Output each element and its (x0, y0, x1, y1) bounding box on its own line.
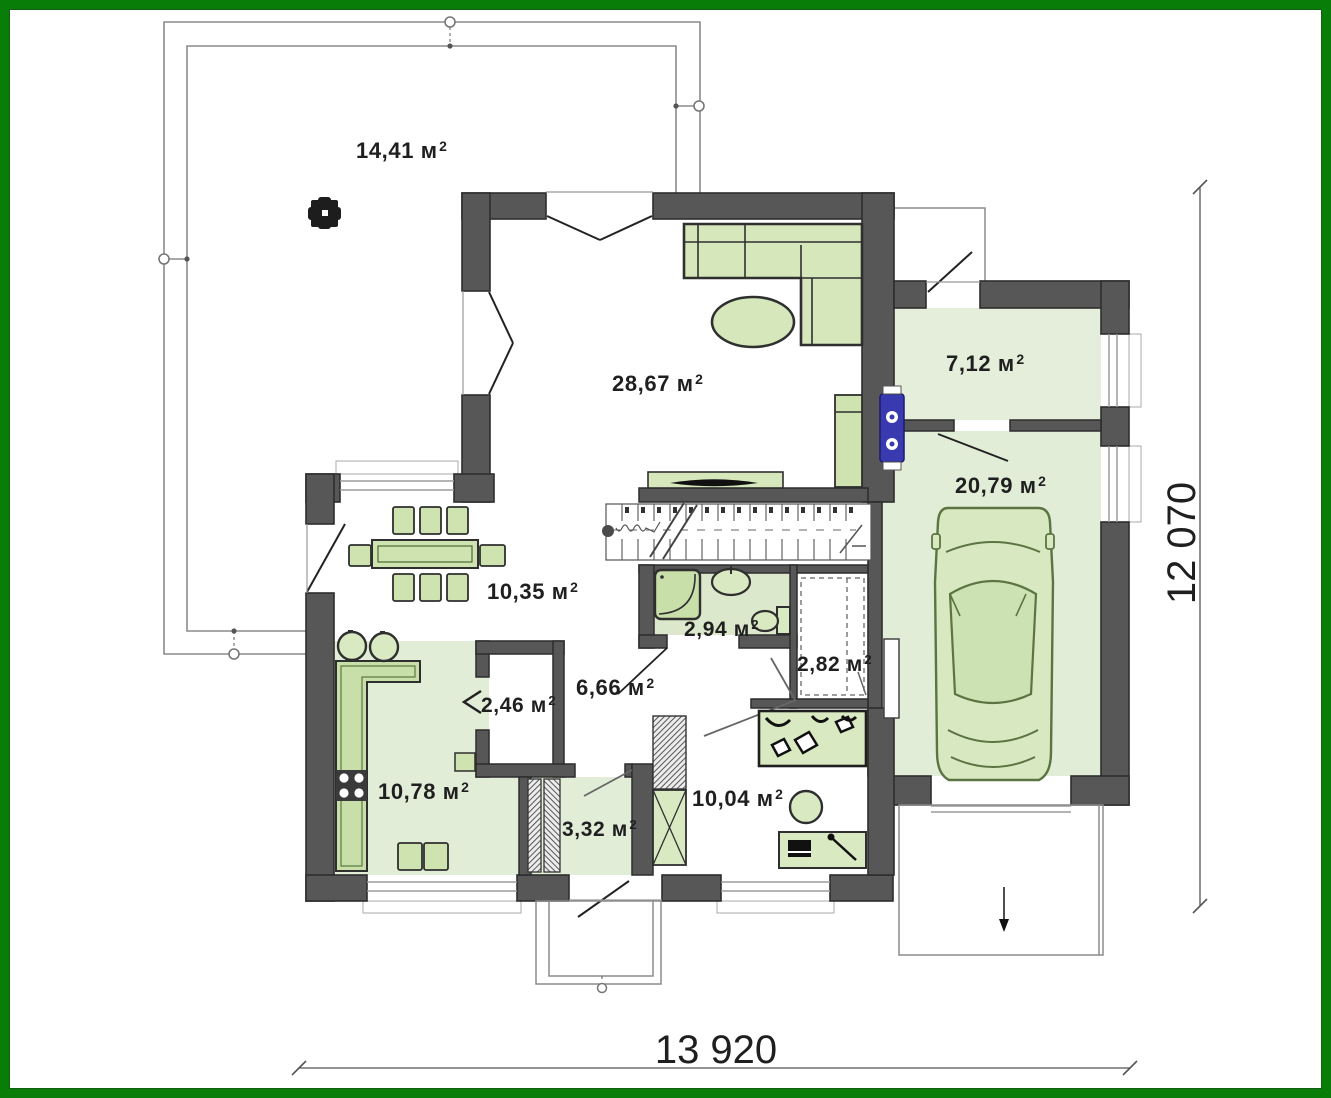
svg-text:2,82 м2: 2,82 м2 (797, 652, 872, 676)
svg-text:28,67 м2: 28,67 м2 (612, 371, 704, 396)
svg-text:10,35 м2: 10,35 м2 (487, 579, 579, 604)
svg-text:2,46 м2: 2,46 м2 (481, 693, 556, 717)
svg-text:20,79 м2: 20,79 м2 (955, 473, 1047, 498)
svg-text:13 920: 13 920 (655, 1028, 777, 1072)
svg-text:14,41 м2: 14,41 м2 (356, 138, 448, 163)
svg-text:10,04 м2: 10,04 м2 (692, 786, 784, 811)
svg-text:2,94 м2: 2,94 м2 (684, 617, 759, 641)
svg-text:7,12 м2: 7,12 м2 (946, 351, 1025, 376)
svg-text:12 070: 12 070 (1160, 482, 1204, 604)
svg-text:3,32 м2: 3,32 м2 (562, 817, 637, 841)
svg-text:10,78 м2: 10,78 м2 (378, 779, 470, 804)
svg-text:6,66 м2: 6,66 м2 (576, 675, 655, 700)
